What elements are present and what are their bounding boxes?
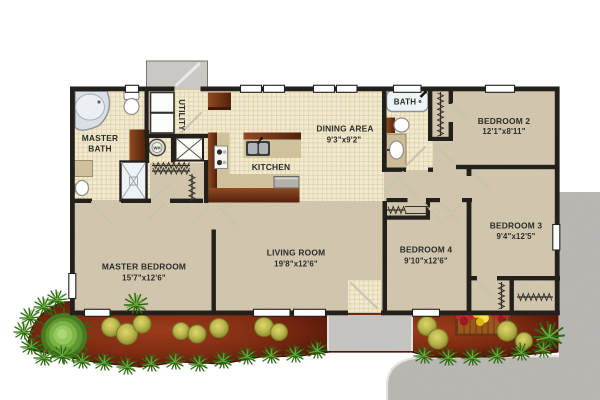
svg-text:MASTER BEDROOM: MASTER BEDROOM <box>102 262 186 272</box>
svg-text:WH: WH <box>154 146 161 151</box>
svg-text:BEDROOM 4: BEDROOM 4 <box>400 245 453 255</box>
svg-text:9'4"x12'5": 9'4"x12'5" <box>496 232 535 241</box>
svg-text:MASTER: MASTER <box>82 133 119 143</box>
svg-text:9'3"x9'2": 9'3"x9'2" <box>327 136 362 145</box>
svg-text:BATH: BATH <box>394 98 416 107</box>
svg-text:LIVING ROOM: LIVING ROOM <box>267 248 326 258</box>
svg-text:9'10"x12'6": 9'10"x12'6" <box>404 257 448 266</box>
svg-text:19'8"x12'6": 19'8"x12'6" <box>274 260 318 269</box>
svg-text:UTILITY: UTILITY <box>177 99 186 131</box>
svg-text:15'7"x12'6": 15'7"x12'6" <box>122 274 166 283</box>
svg-text:BATH: BATH <box>88 144 111 154</box>
svg-text:BEDROOM 3: BEDROOM 3 <box>490 221 543 231</box>
svg-text:BEDROOM 2: BEDROOM 2 <box>478 116 531 126</box>
svg-text:DINING AREA: DINING AREA <box>316 124 373 134</box>
svg-text:KITCHEN: KITCHEN <box>252 162 291 172</box>
svg-text:12'1"x8'11": 12'1"x8'11" <box>482 127 525 136</box>
